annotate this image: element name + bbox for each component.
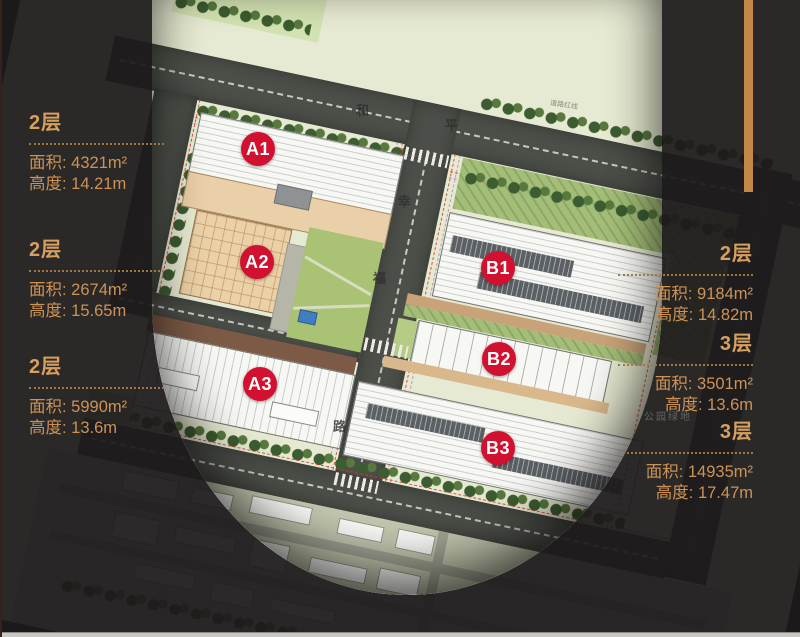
left-edge-line [0,0,2,637]
floors-label: 2层 [29,356,164,378]
street-name-char: 和 [356,100,369,119]
map-overlay: 和 平 幸 福 路 道路红线 A1 A2 A3 B1 B2 B3 [152,0,662,595]
floors-label: 2层 [29,112,164,134]
badge-b1: B1 [481,251,515,285]
spec-divider [29,270,164,272]
badge-b3: B3 [481,431,515,465]
floors-label: 2层 [618,243,753,265]
spec-divider [618,364,753,366]
area-label: 面积: 2674m² [29,280,164,301]
height-label: 高度: 17.47m [618,483,753,504]
area-label: 面积: 14935m² [618,462,753,483]
badge-b2: B2 [482,342,516,376]
street-name-char: 幸 [398,191,411,210]
gold-accent-bar [744,0,753,192]
street-name-char: 路 [333,416,346,435]
height-label: 高度: 15.65m [29,301,164,322]
badge-a3: A3 [243,367,277,401]
red-line-label: 道路红线 [549,98,578,112]
spec-a3: 2层 面积: 5990m² 高度: 13.6m [29,356,164,439]
badge-a1: A1 [241,132,275,166]
spec-a2: 2层 面积: 2674m² 高度: 15.65m [29,239,164,322]
badge-a2: A2 [240,245,274,279]
street-name-char: 平 [445,115,458,134]
area-label: 面积: 5990m² [29,397,164,418]
floors-label: 3层 [618,333,753,355]
spec-divider [29,143,164,145]
area-label: 面积: 4321m² [29,153,164,174]
street-name-char: 福 [373,268,386,287]
height-label: 高度: 13.6m [29,418,164,439]
spec-b3: 3层 面积: 14935m² 高度: 17.47m [618,421,753,504]
spec-divider [29,387,164,389]
height-label: 高度: 14.82m [618,305,753,326]
spec-b1: 2层 面积: 9184m² 高度: 14.82m [618,243,753,326]
site-plan-map: 和 平 幸 福 路 道路红线 A1 A2 A3 B1 B2 B3 [152,0,662,595]
spec-divider [618,274,753,276]
height-label: 高度: 14.21m [29,174,164,195]
site-plan-poster: 和 平 幸 福 路 道路红线 A1 A2 A3 B1 B2 B3 公园绿地 2层… [0,0,800,637]
height-label: 高度: 13.6m [618,395,753,416]
spec-a1: 2层 面积: 4321m² 高度: 14.21m [29,112,164,195]
floors-label: 2层 [29,239,164,261]
bottom-strip [0,632,800,637]
floors-label: 3层 [618,421,753,443]
spec-b2: 3层 面积: 3501m² 高度: 13.6m [618,333,753,416]
spec-divider [618,452,753,454]
area-label: 面积: 9184m² [618,284,753,305]
area-label: 面积: 3501m² [618,374,753,395]
